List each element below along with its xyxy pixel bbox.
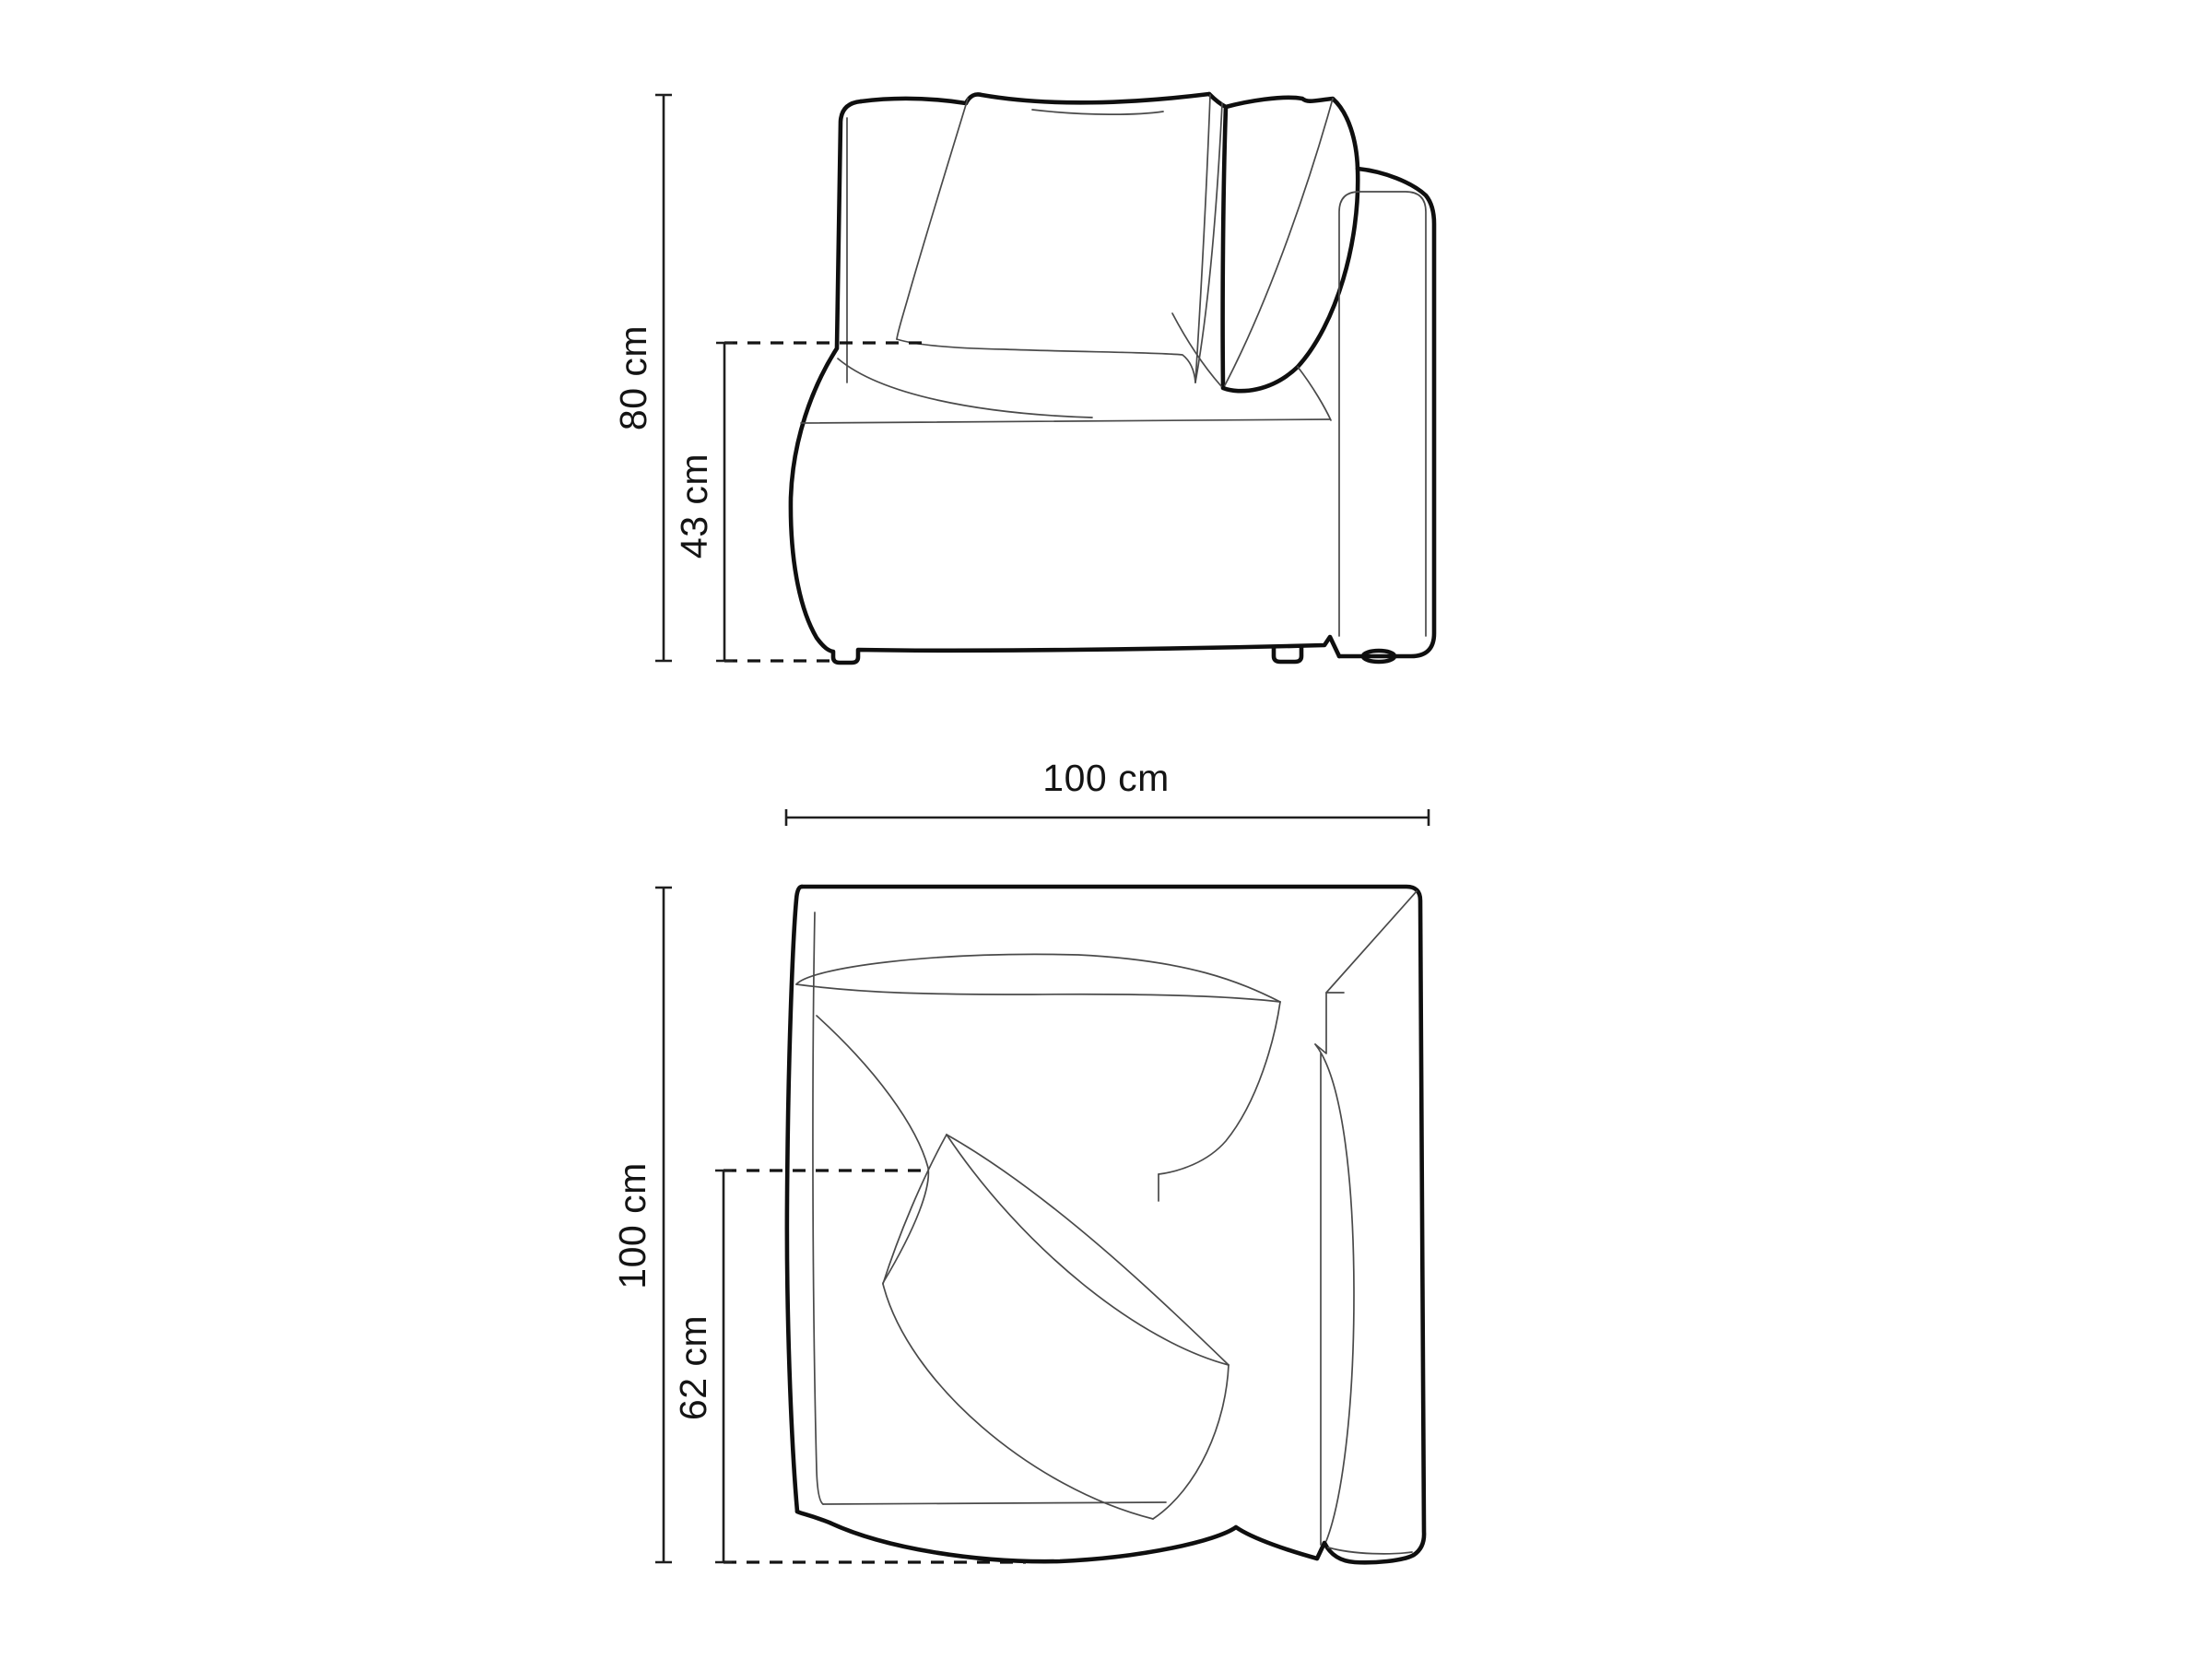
plan-width-dimension: 100 cm: [786, 757, 1429, 826]
front-square-pillow-top: [966, 94, 1209, 103]
front-square-pillow-bottom-edge: [897, 339, 1195, 382]
plan-seat-depth-dimension: 62 cm: [672, 1171, 732, 1562]
pillow-top-right-edge: [947, 1135, 1229, 1365]
front-armrest-inner-panel: [1339, 192, 1426, 636]
plan-back-cushion-front-edge: [796, 984, 1280, 1002]
front-seat-top-line: [801, 419, 1330, 423]
plan-inner-left-edge: [813, 912, 823, 1504]
front-total-height-dimension: 80 cm: [612, 95, 672, 661]
front-right-foot: [1274, 647, 1301, 662]
plan-corner-diagonal: [1326, 891, 1417, 993]
plan-depth-label: 100 cm: [611, 1162, 653, 1288]
plan-tilted-pillow: [883, 1135, 1229, 1519]
pillow-top-left-edge: [883, 1135, 947, 1284]
plan-corner-square: [1315, 993, 1344, 1053]
plan-seat-cushion-bulge: [817, 1016, 928, 1283]
front-square-pillow-left-edge: [897, 99, 968, 339]
front-seat-cushion-top-curve: [838, 359, 1092, 418]
front-backrest-top-inner: [1032, 110, 1163, 114]
pillow-bottom-right-edge: [1153, 1365, 1229, 1519]
front-seat-height-label: 43 cm: [673, 453, 715, 559]
plan-left-edge: [787, 887, 802, 1512]
front-total-height-label: 80 cm: [612, 325, 654, 430]
front-backrest-top: [861, 99, 966, 103]
front-body-outline: [791, 101, 1339, 663]
plan-back-cushion-lobe: [1159, 1002, 1280, 1174]
front-round-pillow-outline: [1209, 94, 1358, 391]
plan-front-edge: [797, 1512, 1324, 1561]
plan-inner-bottom-edge: [823, 1502, 1166, 1504]
top-plan-view: 100 cm: [611, 757, 1429, 1562]
front-round-pillow-seat-crease: [1298, 367, 1331, 420]
pillow-fold-line: [947, 1135, 1229, 1365]
plan-armrest-foot-inner-line: [1328, 1547, 1412, 1554]
front-seat-height-dimension: 43 cm: [673, 343, 733, 661]
pillow-bottom-left-edge: [883, 1284, 1153, 1519]
plan-depth-dimension: 100 cm: [611, 888, 672, 1562]
plan-width-label: 100 cm: [1042, 757, 1169, 799]
sofa-dimension-diagram: 80 cm 43 cm 100 cm: [0, 0, 2212, 1659]
front-elevation-view: 80 cm 43 cm: [612, 94, 1434, 663]
plan-seat-depth-label: 62 cm: [672, 1315, 714, 1420]
